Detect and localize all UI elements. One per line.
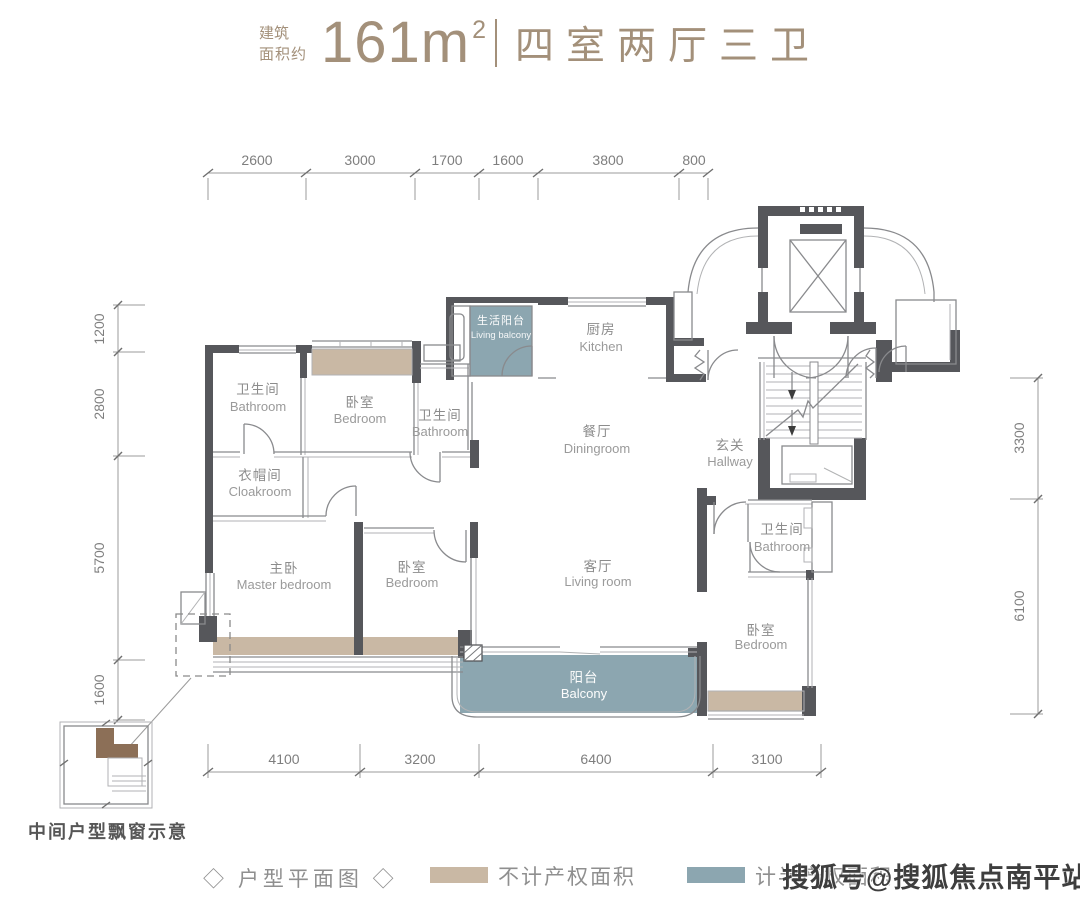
dim-top-1: 2600: [241, 152, 272, 168]
label-cloakroom-cn: 衣帽间: [238, 468, 282, 483]
dimension-bottom: 4100 3200 6400 3100: [203, 744, 826, 778]
label-bathroom3-en: Bathroom: [754, 539, 810, 554]
dim-right-1: 3300: [1011, 422, 1027, 453]
watermark: 搜狐号@搜狐焦点南平站: [782, 856, 1080, 895]
stairs: [766, 362, 862, 484]
dim-top-3: 1700: [431, 152, 462, 168]
label-bedroom3-cn: 卧室: [747, 622, 776, 638]
dim-bottom-1: 4100: [268, 751, 299, 767]
dim-left-2: 2800: [91, 388, 107, 419]
label-living-en: Living room: [564, 574, 631, 589]
legend-label-non-property: 不计产权面积: [498, 861, 636, 891]
label-kitchen-cn: 厨房: [587, 322, 616, 337]
label-bathroom1-en: Bathroom: [230, 399, 286, 414]
dim-top-5: 3800: [592, 152, 623, 168]
label-bedroom3-en: Bedroom: [735, 637, 788, 652]
label-balcony-cn: 阳台: [570, 670, 599, 685]
bay-window-bedroom1: [312, 349, 412, 375]
dim-top-2: 3000: [344, 152, 375, 168]
bay-window-bedroom2: [363, 637, 463, 655]
bay-window-detail-sketch: 中间户型飘窗示意: [28, 720, 188, 842]
bay-window-bedroom3: [708, 691, 804, 711]
label-cloakroom-en: Cloakroom: [229, 484, 292, 499]
label-hallway-cn: 玄关: [716, 437, 745, 453]
label-master-en: Master bedroom: [237, 577, 332, 592]
hatch-column: [464, 645, 482, 661]
dim-top-4: 1600: [492, 152, 523, 168]
legend-title: ◇ 户型平面图 ◇: [203, 863, 398, 893]
dim-bottom-2: 3200: [404, 751, 435, 767]
legend-swatch-half-property: [687, 867, 745, 883]
dim-right-2: 6100: [1011, 590, 1027, 621]
label-living-balcony-cn: 生活阳台: [477, 313, 525, 327]
label-living-cn: 客厅: [584, 558, 613, 574]
floorplan-page: 建筑 面积约 161m2 四室两厅三卫 2600 3000 1700 1600 …: [0, 0, 1080, 905]
dim-left-3: 5700: [91, 542, 107, 573]
label-bathroom3-cn: 卫生间: [760, 522, 804, 537]
floorplan-svg: 2600 3000 1700 1600 3800 800 4100 3200 6…: [0, 0, 1080, 905]
bay-window-master: [213, 637, 354, 655]
label-bedroom1-en: Bedroom: [334, 411, 387, 426]
dimension-top: 2600 3000 1700 1600 3800 800: [203, 152, 713, 200]
label-kitchen-en: Kitchen: [579, 339, 622, 354]
label-hallway-en: Hallway: [707, 454, 753, 469]
dim-bottom-4: 3100: [751, 751, 782, 767]
label-bedroom2-en: Bedroom: [386, 575, 439, 590]
label-dining-en: Diningroom: [564, 441, 630, 456]
label-balcony-en: Balcony: [561, 686, 608, 701]
legend-swatch-non-property: [430, 867, 488, 883]
label-bathroom1-cn: 卫生间: [236, 382, 280, 397]
legend-swatch-half-property-rect: [687, 867, 745, 883]
label-bathroom2-cn: 卫生间: [418, 408, 462, 423]
label-living-balcony-en: Living balcony: [471, 330, 531, 341]
label-dining-cn: 餐厅: [583, 424, 612, 439]
legend-swatch-non-property-rect: [430, 867, 488, 883]
label-master-cn: 主卧: [270, 561, 299, 576]
detail-caption: 中间户型飘窗示意: [28, 821, 188, 842]
dim-bottom-3: 6400: [580, 751, 611, 767]
dim-top-6: 800: [682, 152, 706, 168]
dim-left-4: 1600: [91, 674, 107, 705]
label-bedroom1-cn: 卧室: [346, 394, 375, 410]
dimension-left: 1200 2800 5700 1600: [91, 301, 145, 724]
elevator: [790, 207, 846, 312]
bay-window-callout: [128, 592, 230, 748]
label-bedroom2-cn: 卧室: [398, 559, 427, 575]
dimension-right: 3300 6100: [1010, 374, 1043, 718]
label-bathroom2-en: Bathroom: [412, 424, 468, 439]
dim-left-1: 1200: [91, 313, 107, 344]
